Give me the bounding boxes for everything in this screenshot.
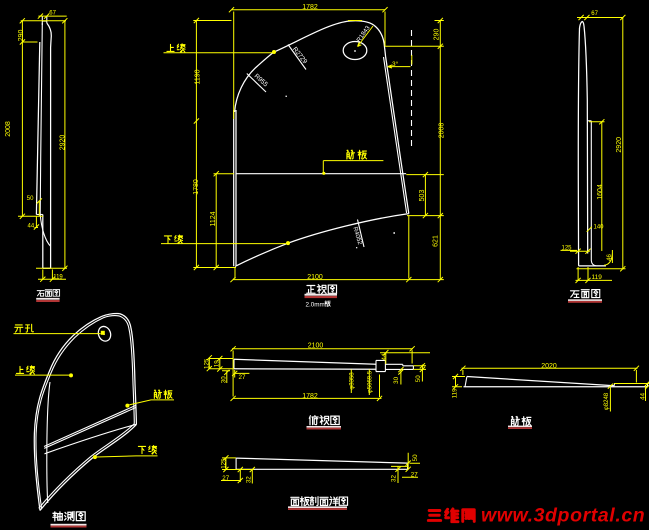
- svg-text:119: 119: [592, 274, 603, 281]
- svg-text:50: 50: [27, 196, 34, 202]
- svg-text:2.0mm: 2.0mm: [306, 301, 325, 308]
- svg-text:φ8358: φ8358: [349, 372, 355, 390]
- svg-text:125: 125: [220, 458, 227, 469]
- svg-text:67: 67: [591, 11, 598, 17]
- svg-text:125: 125: [204, 358, 211, 369]
- svg-text:1782: 1782: [302, 393, 318, 400]
- svg-text:φ5069.5: φ5069.5: [367, 370, 373, 393]
- svg-text:621: 621: [433, 235, 440, 247]
- svg-text:32: 32: [391, 475, 398, 482]
- svg-text:2920: 2920: [616, 137, 623, 153]
- svg-text:503: 503: [419, 190, 426, 202]
- svg-text:30: 30: [393, 376, 400, 383]
- svg-text:50: 50: [415, 375, 422, 382]
- svg-text:290: 290: [434, 29, 441, 41]
- svg-text:1782: 1782: [302, 4, 318, 11]
- svg-text:44: 44: [639, 392, 646, 399]
- svg-text:27: 27: [411, 471, 418, 478]
- svg-text:290: 290: [18, 30, 25, 42]
- svg-text:1124: 1124: [210, 211, 217, 226]
- svg-text:1604: 1604: [597, 184, 604, 200]
- svg-text:140: 140: [594, 224, 605, 230]
- svg-text:27: 27: [239, 374, 246, 381]
- svg-text:30: 30: [220, 376, 227, 383]
- svg-text:119: 119: [53, 275, 63, 281]
- svg-text:2020: 2020: [541, 363, 557, 370]
- svg-text:67: 67: [49, 10, 56, 16]
- svg-text:1190: 1190: [195, 69, 202, 84]
- svg-text:27: 27: [222, 475, 229, 482]
- svg-text:φ8248: φ8248: [604, 392, 610, 410]
- svg-text:2100: 2100: [307, 274, 323, 281]
- svg-text:2100: 2100: [308, 343, 324, 350]
- svg-text:19: 19: [213, 360, 220, 367]
- svg-text:www.3dportal.cn: www.3dportal.cn: [481, 505, 645, 527]
- svg-text:50: 50: [412, 454, 419, 461]
- svg-text:32: 32: [246, 476, 253, 483]
- svg-text:2920: 2920: [59, 135, 66, 151]
- svg-text:2008: 2008: [5, 121, 12, 137]
- svg-text:119: 119: [451, 388, 458, 398]
- svg-text:44: 44: [28, 224, 35, 230]
- svg-text:44: 44: [381, 353, 388, 360]
- svg-text:1780: 1780: [193, 179, 200, 195]
- svg-text:2008: 2008: [439, 123, 446, 139]
